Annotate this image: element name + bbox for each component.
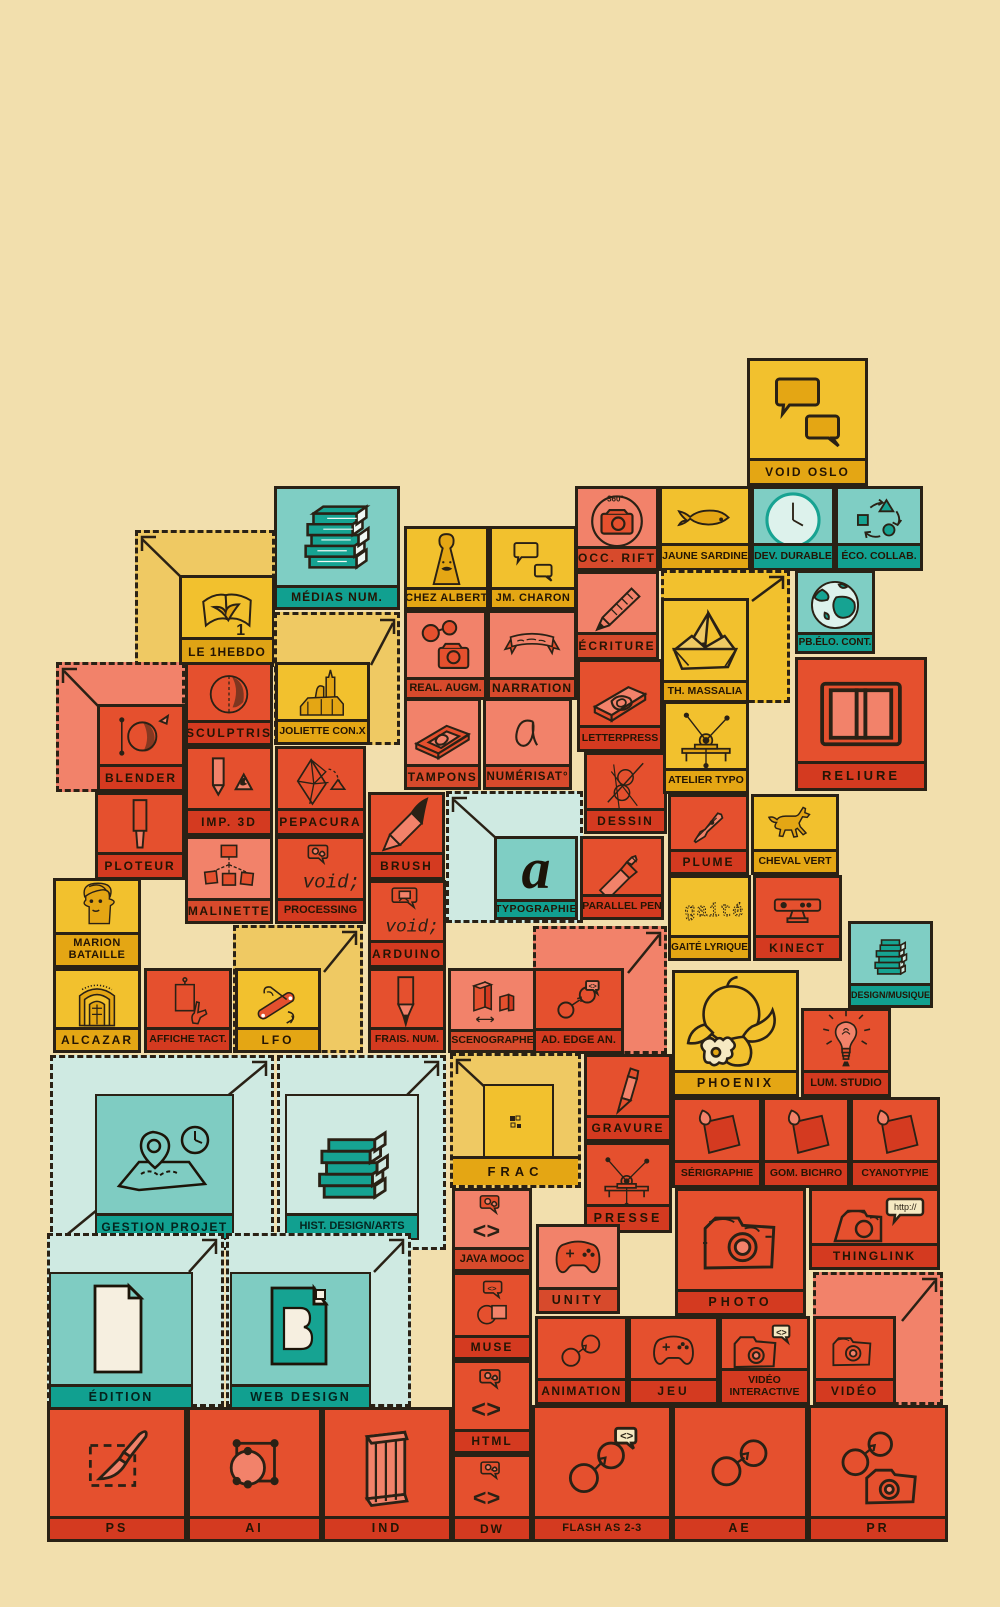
svg-text:<>: <> bbox=[776, 1328, 787, 1338]
svg-text:<>: <> bbox=[620, 1431, 634, 1443]
svg-text:360°: 360° bbox=[607, 494, 624, 503]
svg-text:<>: <> bbox=[488, 1284, 497, 1293]
svg-text:gaité: gaité bbox=[684, 900, 744, 922]
svg-text:<>: <> bbox=[473, 1487, 501, 1513]
svg-text:<>: <> bbox=[472, 1220, 500, 1246]
svg-text:<>: <> bbox=[471, 1397, 501, 1426]
svg-text:<>: <> bbox=[589, 984, 597, 991]
svg-text:void;: void; bbox=[303, 872, 361, 894]
svg-text:http://: http:// bbox=[894, 1202, 917, 1212]
svg-text:void;: void; bbox=[385, 918, 439, 938]
